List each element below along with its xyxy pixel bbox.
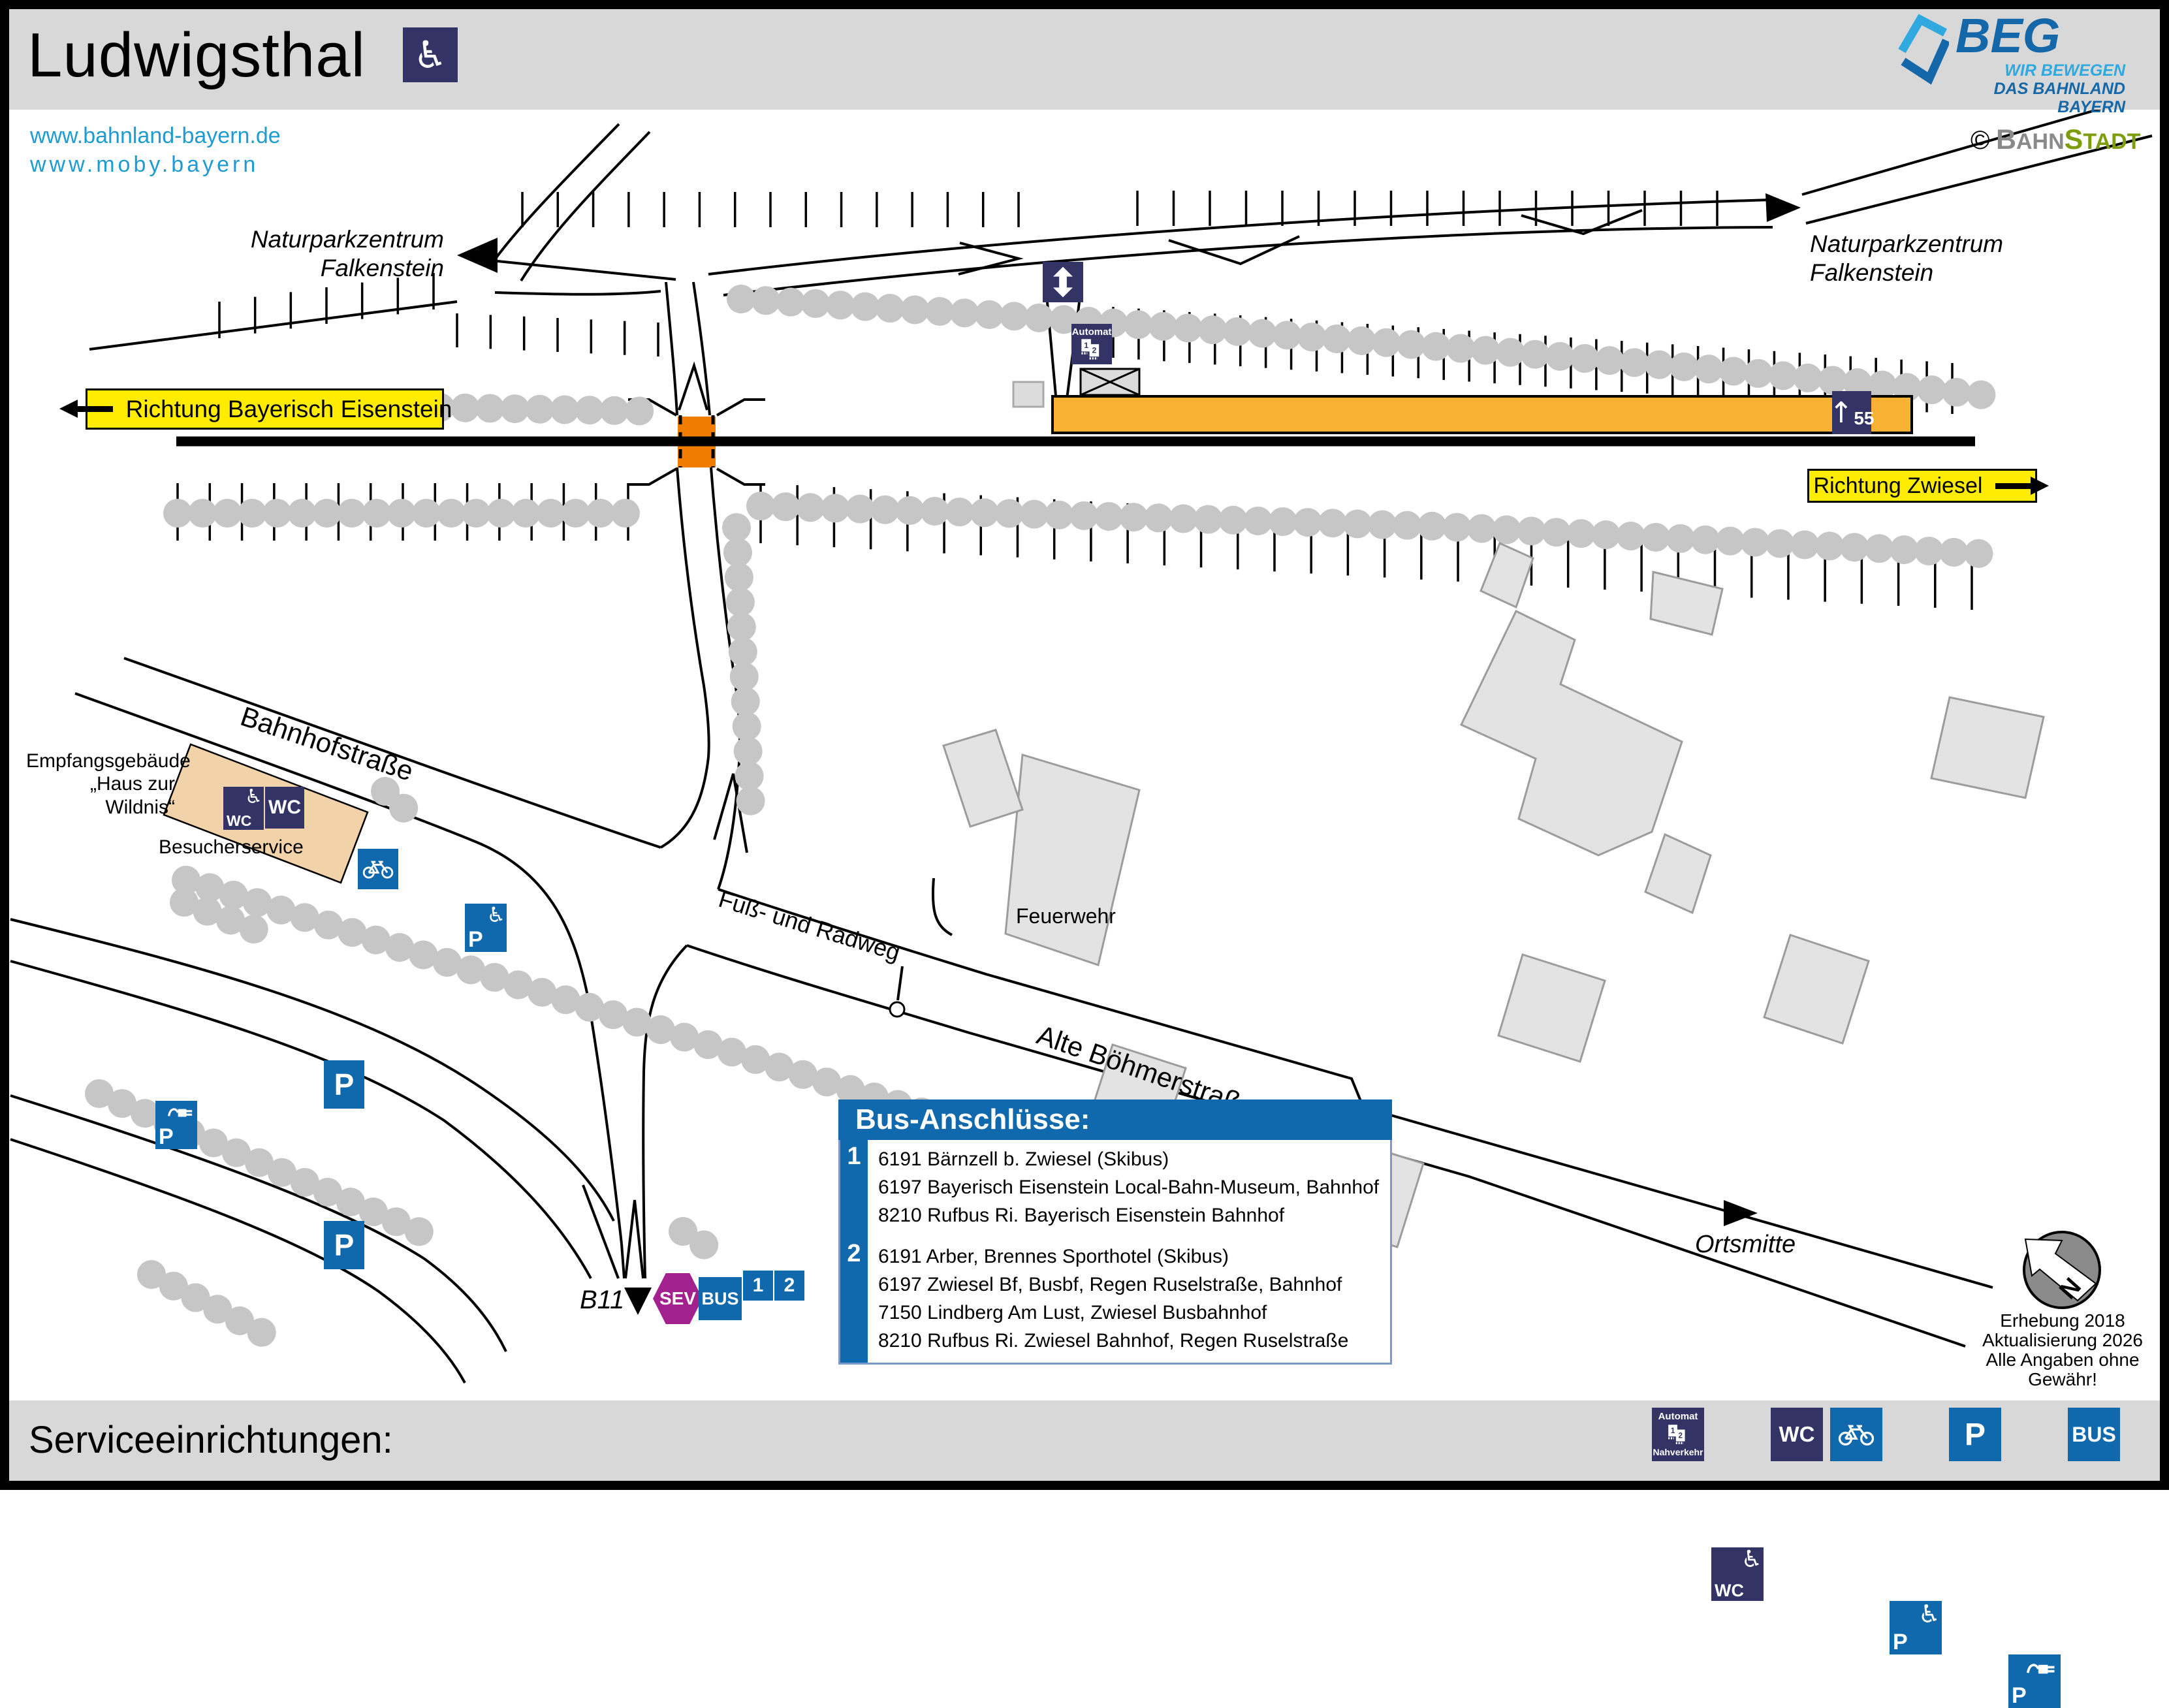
bus-line: 6197 Bayerisch Eisenstein Local-Bahn-Mus…	[878, 1173, 1379, 1201]
arrow-right-icon	[1995, 483, 2031, 489]
shelter	[1081, 369, 1139, 395]
arrow-ortsmitte	[1724, 1200, 1758, 1226]
b11-road-label: B11	[580, 1285, 624, 1316]
survey-notes: Erhebung 2018 Aktualisierung 2026 Alle A…	[1961, 1311, 2164, 1389]
credit-part2-cap: S	[2065, 124, 2083, 155]
link-bahnland-bayern[interactable]: www.bahnland-bayern.de	[30, 121, 281, 150]
visitor-service-label: Besucherservice	[159, 836, 304, 859]
beg-diamond-icon	[1889, 10, 1949, 91]
bus-line: 8210 Rufbus Ri. Bayerisch Eisenstein Bah…	[878, 1201, 1379, 1229]
credit-part1: AHN	[2016, 129, 2065, 154]
arrow-b11-south	[624, 1288, 652, 1315]
platform-equipment-box	[1013, 382, 1043, 407]
wheelchair-icon: ♿	[1918, 1602, 1940, 1626]
compass-north-icon: N	[2024, 1232, 2100, 1308]
wheelchair-icon: ♿	[486, 904, 505, 925]
legend-title: Serviceeinrichtungen:	[29, 1418, 393, 1462]
page-title: Ludwigsthal	[27, 20, 366, 91]
svg-text:2: 2	[1678, 1431, 1682, 1440]
parking-icon: P	[324, 1221, 364, 1269]
ortsmitte-label: Ortsmitte	[1695, 1230, 1796, 1259]
destination-naturpark-left: Naturparkzentrum Falkenstein	[196, 225, 444, 282]
station-building-label: Empfangsgebäude „Haus zur Wildnis“	[26, 750, 175, 819]
bus-box-title: Bus-Anschlüsse:	[838, 1099, 1392, 1140]
legend-wc-accessible-icon: WC ♿	[1711, 1547, 1764, 1601]
legend-bike-parking-icon	[1830, 1408, 1882, 1461]
wheelchair-icon: ♿	[413, 36, 447, 74]
bahnstadt-credit: © BAHNSTADT	[1971, 124, 2140, 156]
fire-station-building	[1005, 755, 1139, 965]
arrow-naturpark-left	[457, 238, 498, 273]
bollard	[890, 1002, 904, 1017]
bicycle-icon	[1838, 1423, 1875, 1446]
arrow-left-icon	[78, 406, 113, 412]
wc-label: WC	[227, 814, 251, 829]
beg-tagline-1: WIR BEWEGEN	[1955, 61, 2125, 80]
credit-part2: TADT	[2083, 129, 2140, 154]
accessible-station-icon: ♿	[403, 27, 458, 82]
platform-length-marker: ↑ 55	[1832, 391, 1871, 434]
arrow-naturpark-right	[1765, 193, 1801, 222]
bike-parking-icon	[358, 849, 398, 889]
bus-line: 7150 Lindberg Am Lust, Zwiesel Busbahnho…	[878, 1299, 1348, 1327]
direction-sign-right-label: Richtung Zwiesel	[1814, 473, 1983, 499]
beg-logo: BEG WIR BEWEGEN DAS BAHNLAND BAYERN	[1889, 10, 2125, 116]
up-arrow-icon: ↑	[1829, 396, 1853, 430]
stop-1-badge: 1	[840, 1140, 868, 1237]
parking-icon: P	[324, 1060, 364, 1109]
ticket-machine-sign: Automat 1 2	[1071, 324, 1112, 364]
station-map-page: { "header": { "title": "Ludwigsthal", "l…	[0, 0, 2169, 1490]
beg-tagline-2: DAS BAHNLAND BAYERN	[1955, 80, 2125, 116]
parking-accessible-icon: P ♿	[465, 904, 507, 952]
bus-stop-icon: BUS	[699, 1277, 742, 1320]
ticket-machine-label: Automat	[1072, 327, 1112, 338]
bus-line: 8210 Rufbus Ri. Zwiesel Bahnhof, Regen R…	[878, 1327, 1348, 1355]
legend-automat-label: Automat	[1658, 1412, 1698, 1422]
wc-icon: WC	[265, 787, 304, 829]
credit-part1-cap: B	[1996, 124, 2016, 155]
svg-text:2: 2	[1092, 346, 1096, 355]
legend-wc-icon: WC	[1771, 1408, 1823, 1461]
direction-sign-bayerisch-eisenstein: Richtung Bayerisch Eisenstein	[86, 388, 444, 430]
destination-naturpark-right: Naturparkzentrum Falkenstein	[1810, 230, 2003, 287]
svg-text:1: 1	[1671, 1427, 1675, 1435]
copyright-icon: ©	[1971, 126, 1989, 155]
bicycle-icon	[362, 859, 394, 879]
bus-connections-box: Bus-Anschlüsse: 1 6191 Bärnzell b. Zwies…	[838, 1099, 1392, 1365]
charging-plug-icon	[2026, 1658, 2059, 1679]
platform	[1053, 396, 1912, 433]
link-moby-bayern[interactable]: www.moby.bayern	[30, 150, 281, 179]
bus-line: 6197 Zwiesel Bf, Busbf, Regen Ruselstraß…	[878, 1271, 1348, 1299]
platform-number: 55	[1854, 408, 1874, 434]
platform-access-icon	[1043, 262, 1083, 302]
bus-line: 6191 Bärnzell b. Zwiesel (Skibus)	[878, 1145, 1379, 1173]
tickets-icon: 1 2	[1666, 1423, 1690, 1446]
svg-text:1: 1	[1084, 341, 1088, 350]
bus-stop-2-icon: 2	[774, 1271, 804, 1301]
bus-group-1: 1 6191 Bärnzell b. Zwiesel (Skibus) 6197…	[840, 1140, 1390, 1237]
parking-label: P	[468, 928, 483, 951]
charging-plug-icon	[167, 1103, 196, 1122]
legend-nahverkehr-label: Nahverkehr	[1653, 1447, 1703, 1457]
legend-bus-icon: BUS	[2068, 1408, 2120, 1461]
double-arrow-icon	[1050, 266, 1076, 298]
legend-parking-accessible-icon: P ♿	[1890, 1601, 1942, 1654]
parking-charging-icon: P	[155, 1101, 197, 1149]
bus-stop-1-icon: 1	[743, 1271, 773, 1301]
bus-line: 6191 Arber, Brennes Sporthotel (Skibus)	[878, 1242, 1348, 1271]
legend-parking-charging-icon: P	[2008, 1654, 2061, 1708]
stop-2-badge: 2	[840, 1237, 868, 1363]
fire-station-label: Feuerwehr	[1016, 904, 1116, 929]
direction-sign-zwiesel: Richtung Zwiesel	[1807, 469, 2037, 503]
wc-accessible-icon: WC ♿	[223, 787, 264, 830]
wheelchair-icon: ♿	[245, 787, 262, 807]
legend-parking-icon: P	[1949, 1408, 2001, 1461]
website-links: www.bahnland-bayern.de www.moby.bayern	[30, 121, 281, 179]
legend-ticket-machine-icon: Automat 1 2 Nahverkehr	[1652, 1408, 1704, 1461]
wheelchair-icon: ♿	[1741, 1548, 1762, 1572]
direction-sign-left-label: Richtung Bayerisch Eisenstein	[126, 396, 452, 423]
beg-wordmark: BEG	[1955, 10, 2125, 61]
bus-group-2: 2 6191 Arber, Brennes Sporthotel (Skibus…	[840, 1237, 1390, 1363]
tickets-icon: 1 2	[1079, 338, 1104, 361]
